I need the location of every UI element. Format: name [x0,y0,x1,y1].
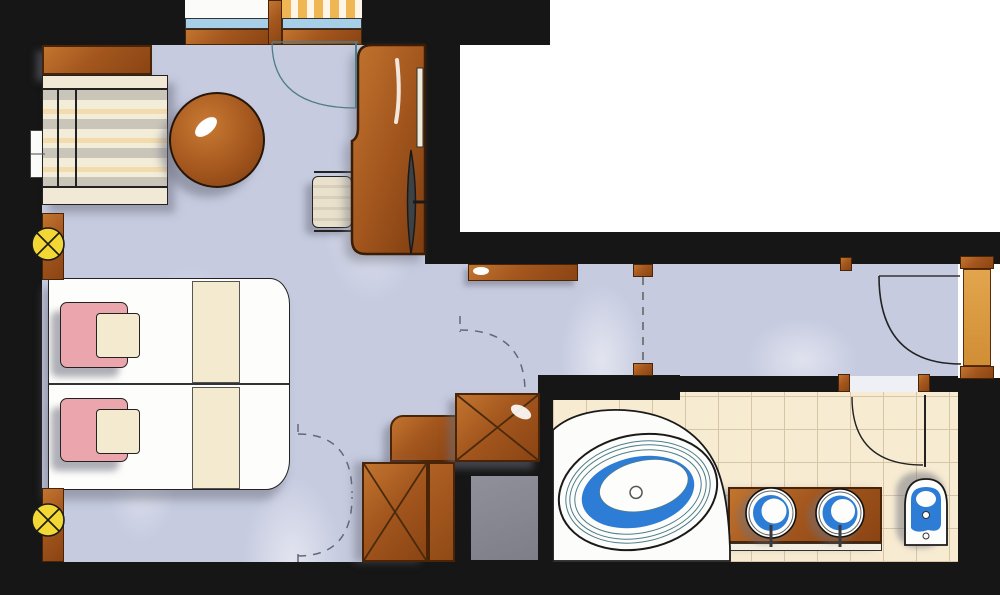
wardrobe-highlight [508,402,533,423]
wall-light-upper [32,228,64,260]
wall-light-lower [32,504,64,536]
toilet-bidet [896,472,947,548]
desk-wall-shelf [417,68,423,147]
wardrobe-x-upper-mark [457,395,538,460]
toilet-button [923,533,929,539]
dressing-door-dashed [460,316,525,392]
round-basin-left [738,488,796,547]
floorplan-canvas [0,0,1000,595]
toilet-drain [923,512,930,519]
bifold-door-dashed-top [298,424,352,493]
basin-bowl-right [831,499,855,523]
bathroom-door-swing [852,397,923,465]
linework-overlay [0,0,1000,595]
bifold-door-dashed-bottom [298,497,352,562]
basin-bowl-left [762,499,787,524]
wardrobe-x-lower-mark [364,464,426,560]
round-basin-right [808,489,864,547]
balcony-door-swing [272,42,356,108]
entry-door-swing [879,276,961,364]
toilet-bowl-inner [916,491,936,507]
